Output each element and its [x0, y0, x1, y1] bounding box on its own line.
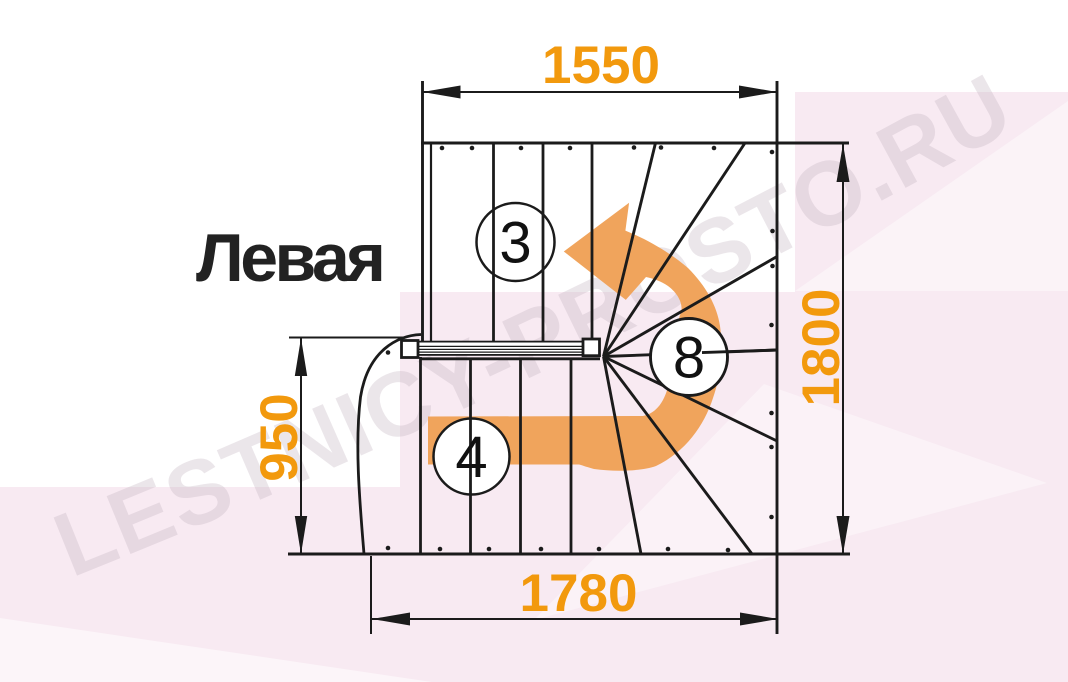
svg-text:1800: 1800: [792, 289, 851, 407]
svg-text:8: 8: [673, 326, 705, 391]
svg-text:4: 4: [455, 425, 487, 490]
svg-text:950: 950: [250, 393, 309, 481]
svg-text:3: 3: [499, 211, 531, 276]
svg-text:1780: 1780: [520, 564, 638, 623]
svg-text:Левая: Левая: [196, 220, 382, 296]
svg-text:1550: 1550: [542, 36, 660, 95]
